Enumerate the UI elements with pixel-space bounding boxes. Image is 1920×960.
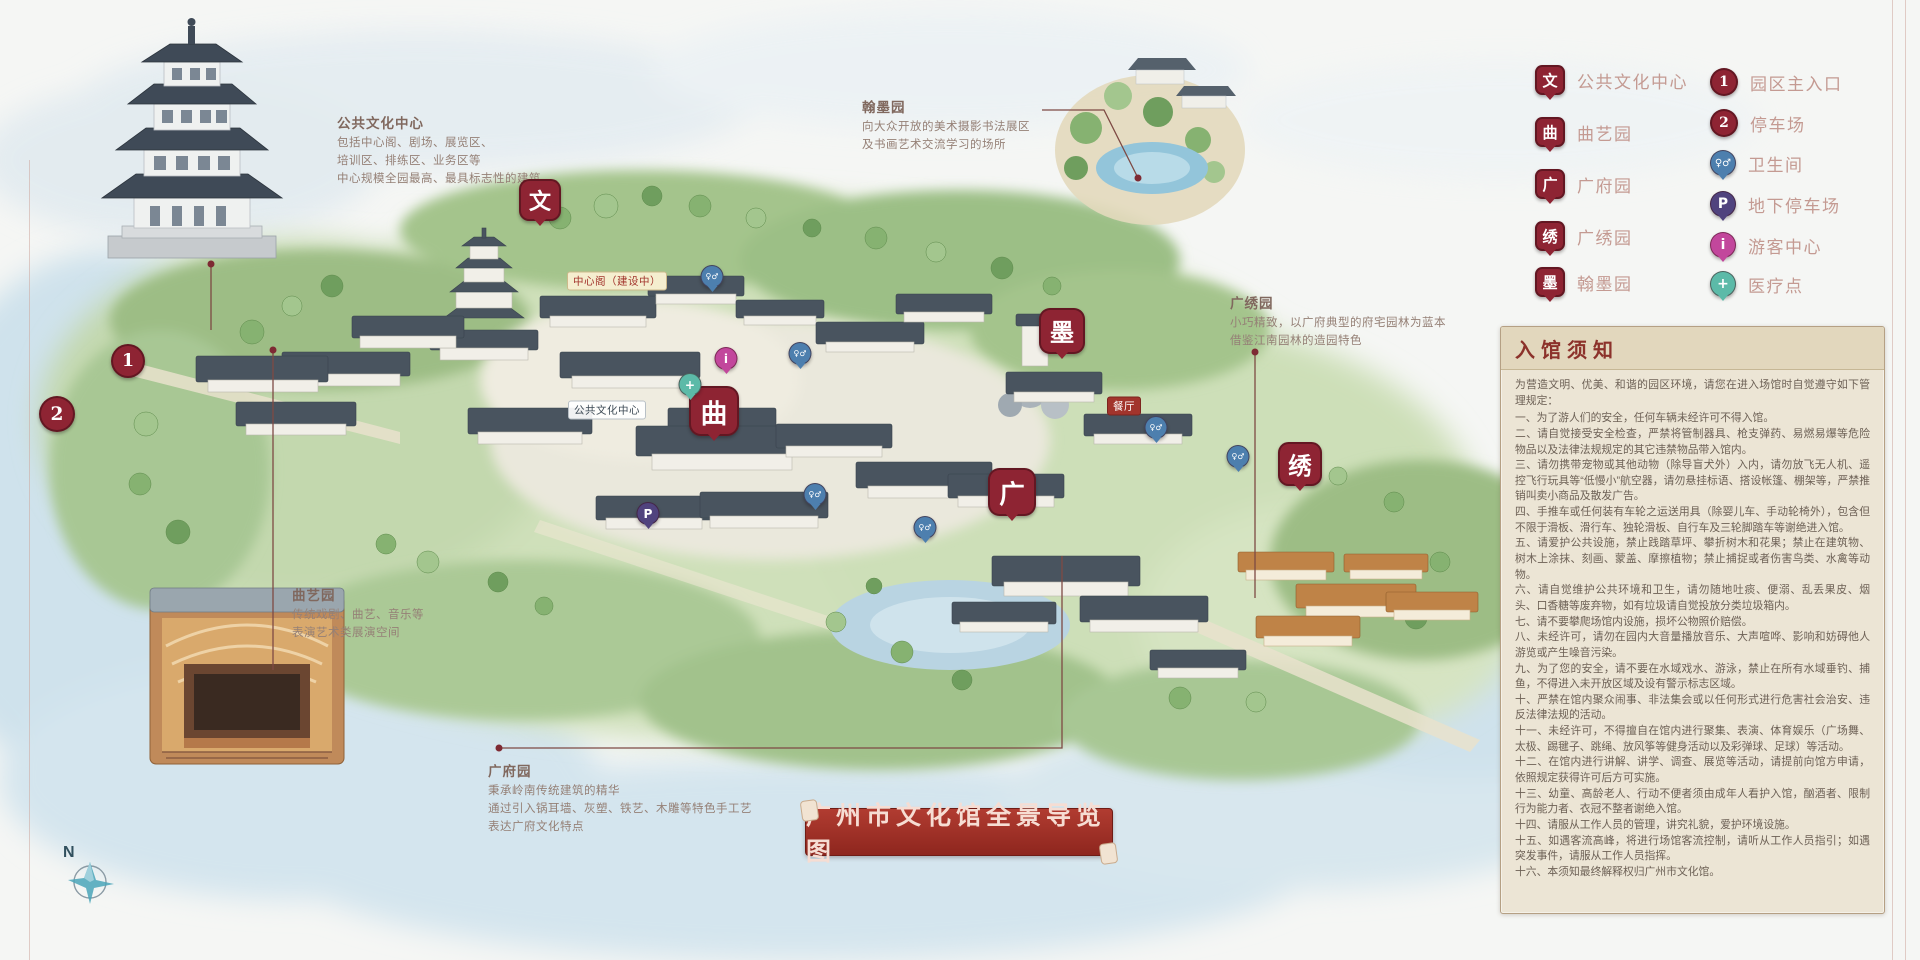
legend-label: 游客中心 [1748, 233, 1822, 258]
annotation-line: 培训区、排练区、业务区等 [337, 153, 541, 171]
annotation-line: 表演艺术类展演空间 [292, 625, 424, 643]
notice-rule: 五、请爱护公共设施，禁止践踏草坪、攀折树木和花果；禁止在建筑物、树木上涂抹、刻画… [1515, 536, 1870, 583]
map-pin-glyph: 文 [519, 179, 561, 221]
notice-header: 入馆须知 [1501, 327, 1884, 370]
legend-pin-icon: 曲 [1535, 117, 1565, 147]
notice-rule: 七、请不要攀爬场馆内设施，损坏公物照价赔偿。 [1515, 615, 1870, 631]
map-label: 中心阁（建设中） [567, 272, 667, 291]
annotation-line: 小巧精致，以广府典型的府宅园林为蓝本 [1230, 315, 1446, 333]
annotation-title: 翰墨园 [862, 96, 1030, 116]
map-pin-glyph: P [637, 502, 660, 525]
map-pin-glyph: 绣 [1278, 442, 1322, 486]
annotation-body: 传统戏剧、曲艺、音乐等表演艺术类展演空间 [292, 607, 424, 643]
map-pin-glyph: 1 [111, 344, 145, 378]
legend-item: 1 园区主入口 [1710, 68, 1843, 96]
notice-rule: 十、严禁在馆内聚众闹事、非法集会或以任何形式进行危害社会治安、违反法律法规的活动… [1515, 693, 1870, 724]
legend-item: i 游客中心 [1710, 232, 1822, 258]
annotation-title: 广府园 [488, 760, 752, 780]
annotation-body: 小巧精致，以广府典型的府宅园林为蓝本借鉴江南园林的造园特色 [1230, 315, 1446, 351]
map-pin: ♀♂ [914, 516, 937, 539]
title-banner: 广州市文化馆全景导览图 [805, 808, 1113, 856]
legend-item: P 地下停车场 [1710, 191, 1841, 217]
legend-pin-icon: + [1710, 271, 1736, 297]
poster: 文 曲 广 墨 绣 1 2 ♀♂ ♀♂ ♀♂ ♀♂ ♀♂ ♀♂ P i [0, 0, 1920, 960]
annotation-line: 通过引入锅耳墙、灰塑、铁艺、木雕等特色手工艺 [488, 801, 752, 819]
legend-pin-icon: 2 [1710, 109, 1738, 137]
map-pin: i [715, 347, 738, 370]
notice-intro: 为营造文明、优美、和谐的园区环境，请您在进入场馆时自觉遵守如下管理规定： [1515, 378, 1870, 409]
map-pin: ♀♂ [804, 483, 827, 506]
legend-item: 文 公共文化中心 [1535, 65, 1688, 95]
annotation: 广府园 秉承岭南传统建筑的精华通过引入锅耳墙、灰塑、铁艺、木雕等特色手工艺表达广… [488, 760, 752, 836]
map-pin: 文 [519, 179, 561, 221]
legend-label: 广绣园 [1577, 224, 1633, 249]
map-pin: ♀♂ [789, 342, 812, 365]
legend-pin-icon: ♀♂ [1710, 150, 1736, 176]
map-pin: 1 [111, 344, 145, 378]
notice-rule: 十五、如遇客流高峰，将进行场馆客流控制，请听从工作人员指引；如遇突发事件，请服从… [1515, 834, 1870, 865]
map-pin-glyph: ♀♂ [789, 342, 812, 365]
annotation-line: 传统戏剧、曲艺、音乐等 [292, 607, 424, 625]
map-pin: ♀♂ [1145, 416, 1168, 439]
legend-item: 绣 广绣园 [1535, 221, 1633, 251]
legend-label: 翰墨园 [1577, 270, 1633, 295]
map-pin: 广 [988, 468, 1036, 516]
map-pin: ♀♂ [1227, 445, 1250, 468]
compass-north-label: N [63, 844, 75, 862]
map-pin: + [679, 373, 702, 396]
annotation-title: 曲艺园 [292, 584, 424, 604]
annotation: 曲艺园 传统戏剧、曲艺、音乐等表演艺术类展演空间 [292, 584, 424, 643]
notice-rule: 九、为了您的安全，请不要在水域戏水、游泳，禁止在所有水域垂钓、捕鱼，不得进入未开… [1515, 662, 1870, 693]
notice-panel: 入馆须知 为营造文明、优美、和谐的园区环境，请您在进入场馆时自觉遵守如下管理规定… [1500, 326, 1885, 914]
map-pin-glyph: 广 [988, 468, 1036, 516]
notice-rule: 十三、幼童、高龄老人、行动不便者须由成年人看护入馆，酗酒者、限制行为能力者、衣冠… [1515, 787, 1870, 818]
legend-item: ♀♂ 卫生间 [1710, 150, 1804, 176]
annotation-body: 向大众开放的美术摄影书法展区及书画艺术交流学习的场所 [862, 119, 1030, 155]
map-title: 广州市文化馆全景导览图 [806, 796, 1112, 868]
legend-label: 地下停车场 [1748, 192, 1841, 217]
map-pin: P [637, 502, 660, 525]
legend-label: 停车场 [1750, 111, 1806, 136]
annotation-line: 及书画艺术交流学习的场所 [862, 137, 1030, 155]
map-pin-glyph: ♀♂ [914, 516, 937, 539]
annotation-line: 中心规模全园最高、最具标志性的建筑 [337, 171, 541, 189]
legend-item: 2 停车场 [1710, 109, 1806, 137]
annotation: 翰墨园 向大众开放的美术摄影书法展区及书画艺术交流学习的场所 [862, 96, 1030, 155]
notice-rule: 三、请勿携带宠物或其他动物（除导盲犬外）入内，请勿放飞无人机、遥控飞行玩具等“低… [1515, 458, 1870, 505]
legend-item: 曲 曲艺园 [1535, 117, 1633, 147]
notice-rule: 十六、本须知最终解释权归广州市文化馆。 [1515, 865, 1870, 881]
legend-pin-icon: 文 [1535, 65, 1565, 95]
annotation-line: 借鉴江南园林的造园特色 [1230, 333, 1446, 351]
notice-rule: 一、为了游人们的安全，任何车辆未经许可不得入馆。 [1515, 411, 1870, 427]
annotation-line: 表达广府文化特点 [488, 819, 752, 837]
annotation-body: 秉承岭南传统建筑的精华通过引入锅耳墙、灰塑、铁艺、木雕等特色手工艺表达广府文化特… [488, 783, 752, 836]
legend-pin-icon: P [1710, 191, 1736, 217]
legend-label: 园区主入口 [1750, 70, 1843, 95]
map-pin-glyph: + [679, 373, 702, 396]
annotation-line: 秉承岭南传统建筑的精华 [488, 783, 752, 801]
notice-rule: 六、请自觉维护公共环境和卫生，请勿随地吐痰、便溺、乱丢果皮、烟头、口香糖等废弃物… [1515, 583, 1870, 614]
map-pin: ♀♂ [701, 265, 724, 288]
notice-rule: 十四、请服从工作人员的管理，讲究礼貌，爱护环境设施。 [1515, 818, 1870, 834]
notice-rule: 二、请自觉接受安全检查，严禁将管制器具、枪支弹药、易燃易爆等危险物品以及法律法规… [1515, 427, 1870, 458]
map-pin-glyph: 墨 [1039, 308, 1085, 354]
legend-label: 曲艺园 [1577, 120, 1633, 145]
annotation-line: 包括中心阁、剧场、展览区、 [337, 135, 541, 153]
legend-pin-icon: 1 [1710, 68, 1738, 96]
notice-rule: 八、未经许可，请勿在园内大音量播放音乐、大声喧哗、影响和妨碍他人游览或产生噪音污… [1515, 630, 1870, 661]
legend-pin-icon: 绣 [1535, 221, 1565, 251]
map-pin: 2 [39, 396, 75, 432]
notice-rule: 十二、在馆内进行讲解、讲学、调查、展览等活动，请提前向馆方申请，依照规定获得许可… [1515, 755, 1870, 786]
legend-item: + 医疗点 [1710, 271, 1804, 297]
legend-pin-icon: 广 [1535, 169, 1565, 199]
map-pin: 绣 [1278, 442, 1322, 486]
map-pin-glyph: i [715, 347, 738, 370]
annotation-title: 广绣园 [1230, 292, 1446, 312]
map-pin-glyph: ♀♂ [1145, 416, 1168, 439]
compass: N [58, 842, 128, 912]
annotation-body: 包括中心阁、剧场、展览区、培训区、排练区、业务区等中心规模全园最高、最具标志性的… [337, 135, 541, 188]
legend-pin-icon: i [1710, 232, 1736, 258]
map-pin-glyph: ♀♂ [804, 483, 827, 506]
annotation: 广绣园 小巧精致，以广府典型的府宅园林为蓝本借鉴江南园林的造园特色 [1230, 292, 1446, 351]
legend-pin-icon: 墨 [1535, 267, 1565, 297]
annotation-line: 向大众开放的美术摄影书法展区 [862, 119, 1030, 137]
notice-rule: 十一、未经许可，不得擅自在馆内进行聚集、表演、体育娱乐（广场舞、太极、踢毽子、跳… [1515, 724, 1870, 755]
notice-rules: 一、为了游人们的安全，任何车辆未经许可不得入馆。二、请自觉接受安全检查，严禁将管… [1515, 411, 1870, 880]
legend-label: 公共文化中心 [1577, 68, 1688, 93]
map-pin-glyph: 2 [39, 396, 75, 432]
legend-item: 墨 翰墨园 [1535, 267, 1633, 297]
legend-label: 医疗点 [1748, 272, 1804, 297]
legend-item: 广 广府园 [1535, 169, 1633, 199]
annotation: 公共文化中心 包括中心阁、剧场、展览区、培训区、排练区、业务区等中心规模全园最高… [337, 112, 541, 188]
map-label: 餐厅 [1107, 397, 1141, 416]
annotation-title: 公共文化中心 [337, 112, 541, 132]
legend-label: 卫生间 [1748, 151, 1804, 176]
map-pin-glyph: ♀♂ [1227, 445, 1250, 468]
map-pin-glyph: ♀♂ [701, 265, 724, 288]
map-pin: 墨 [1039, 308, 1085, 354]
legend-label: 广府园 [1577, 172, 1633, 197]
map-label: 公共文化中心 [568, 401, 646, 420]
notice-rule: 四、手推车或任何装有车轮之运送用具（除婴儿车、手动轮椅外），包含但不限于滑板、滑… [1515, 505, 1870, 536]
